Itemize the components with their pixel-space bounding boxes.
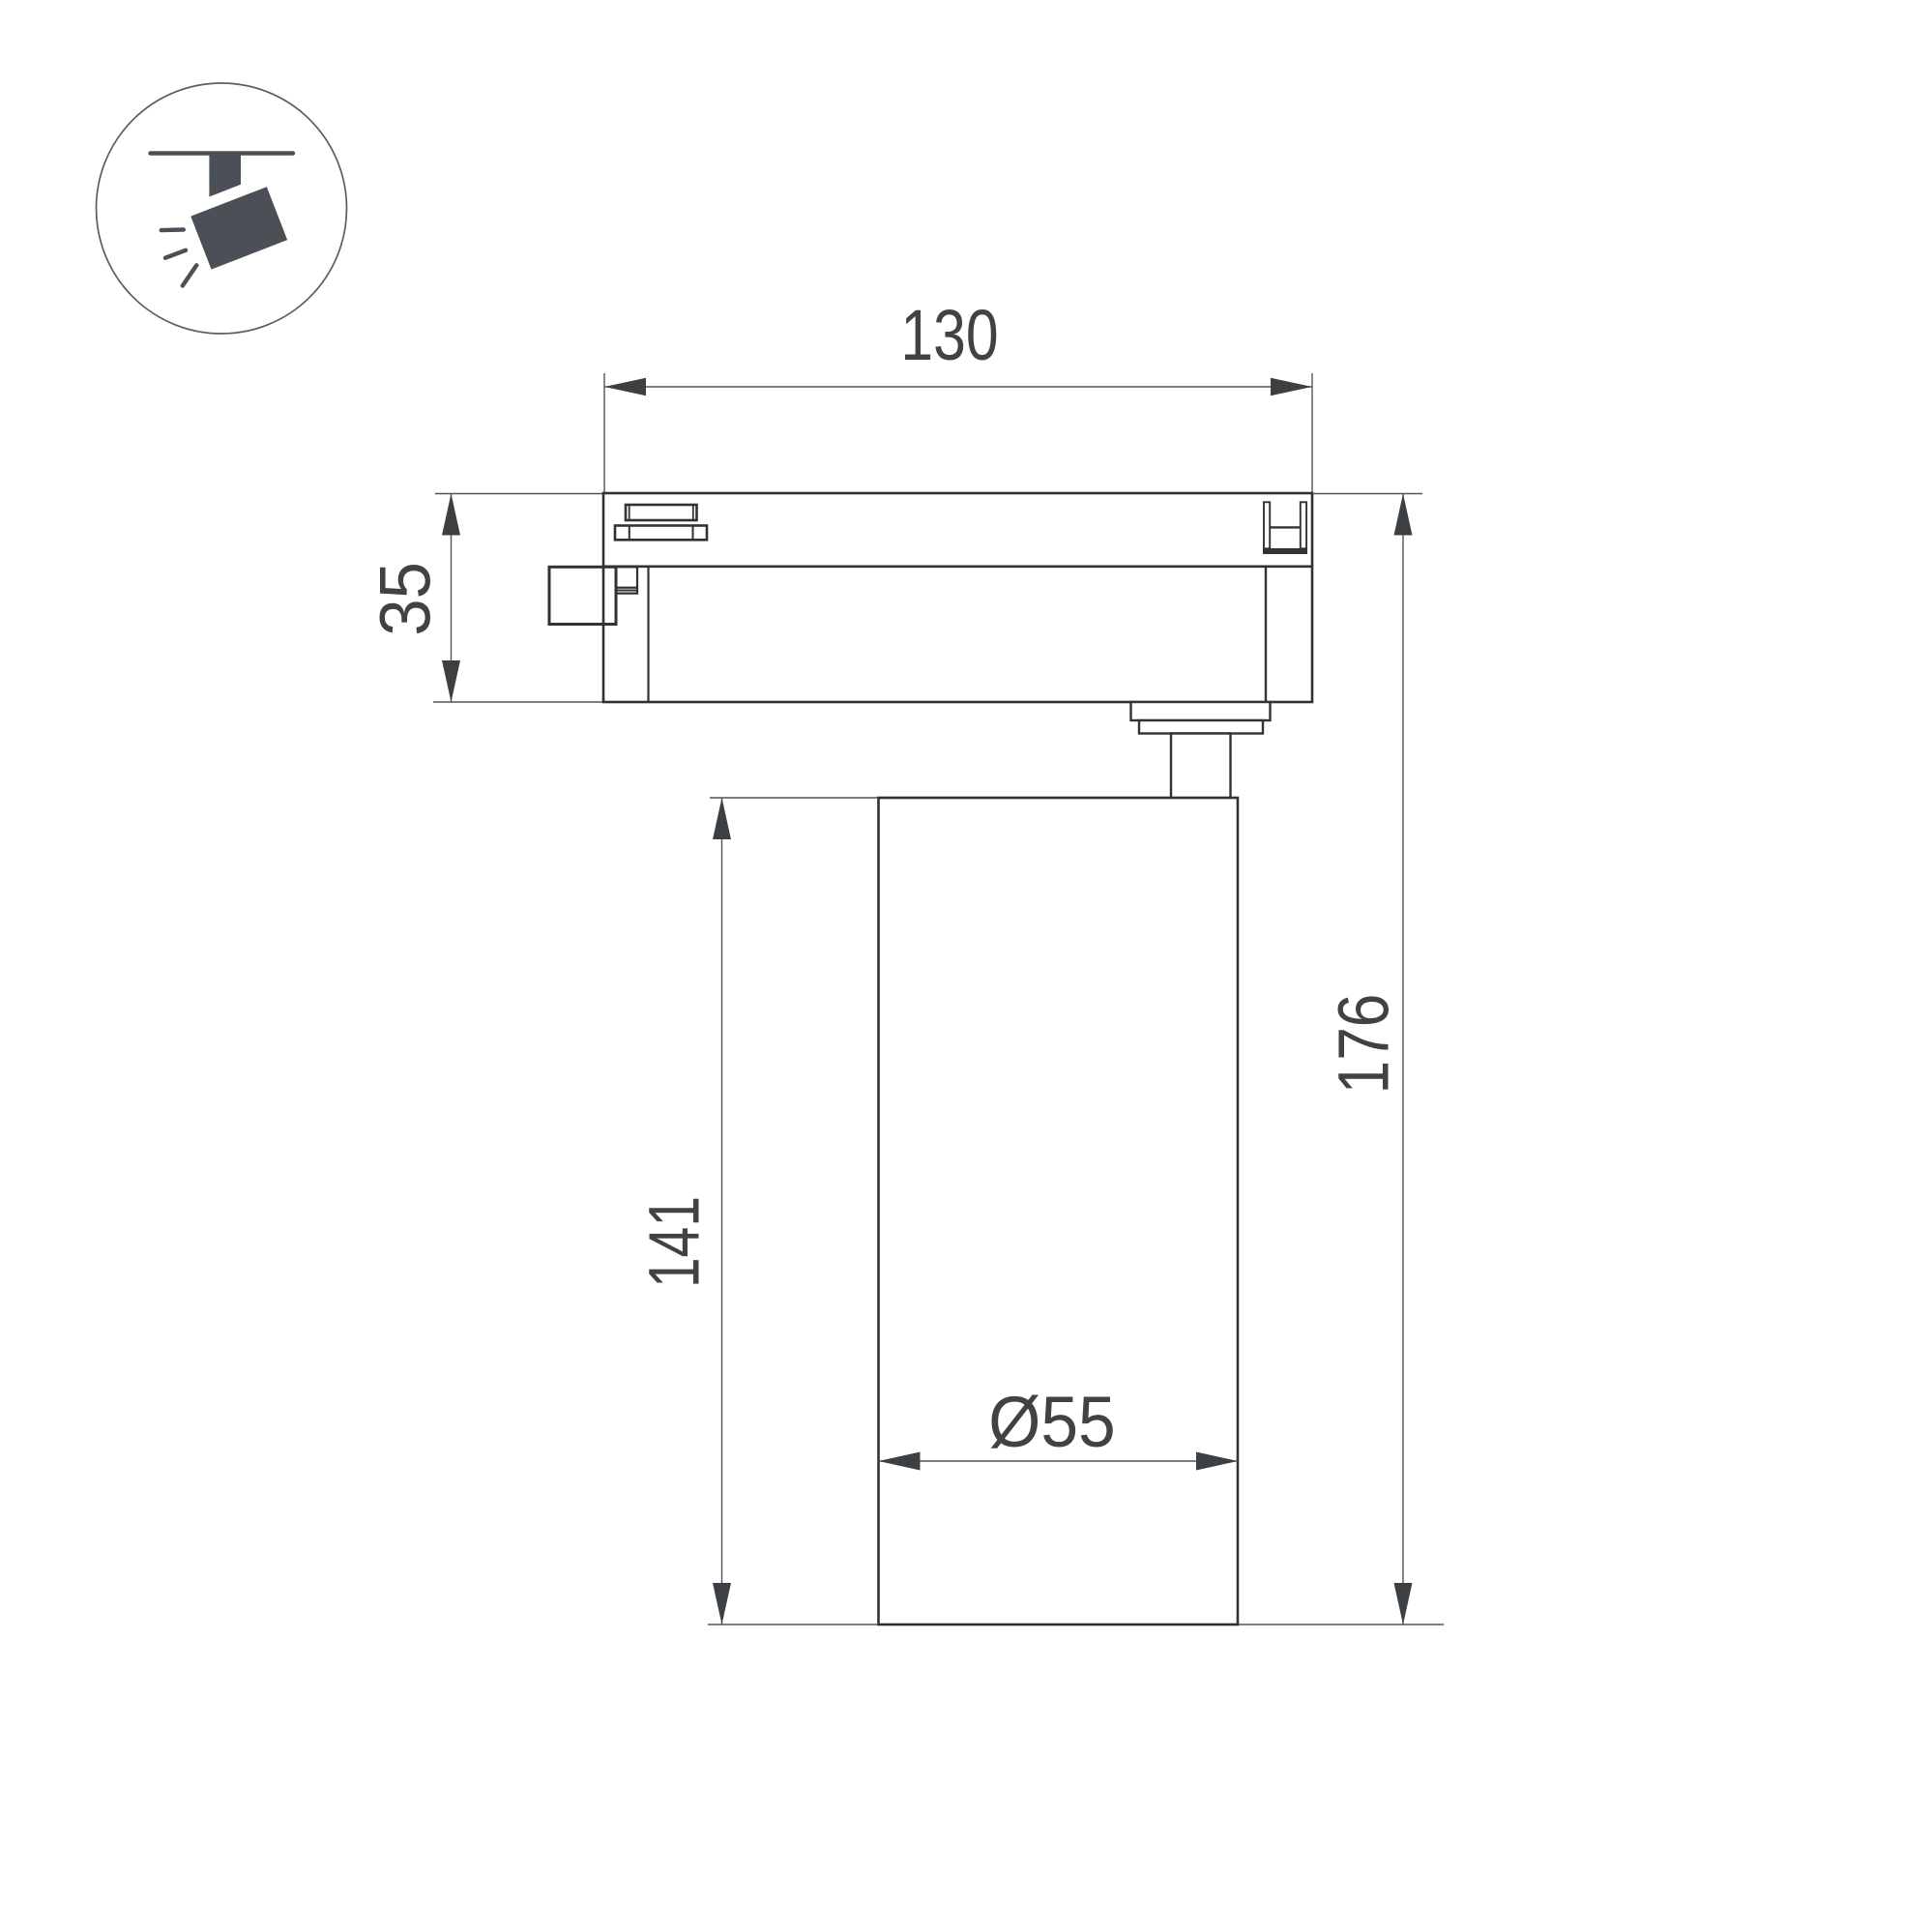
svg-text:130: 130 xyxy=(900,296,998,375)
svg-text:176: 176 xyxy=(1324,994,1403,1095)
svg-text:141: 141 xyxy=(633,1196,714,1288)
svg-text:35: 35 xyxy=(366,562,446,636)
svg-text:Ø55: Ø55 xyxy=(988,1383,1115,1462)
